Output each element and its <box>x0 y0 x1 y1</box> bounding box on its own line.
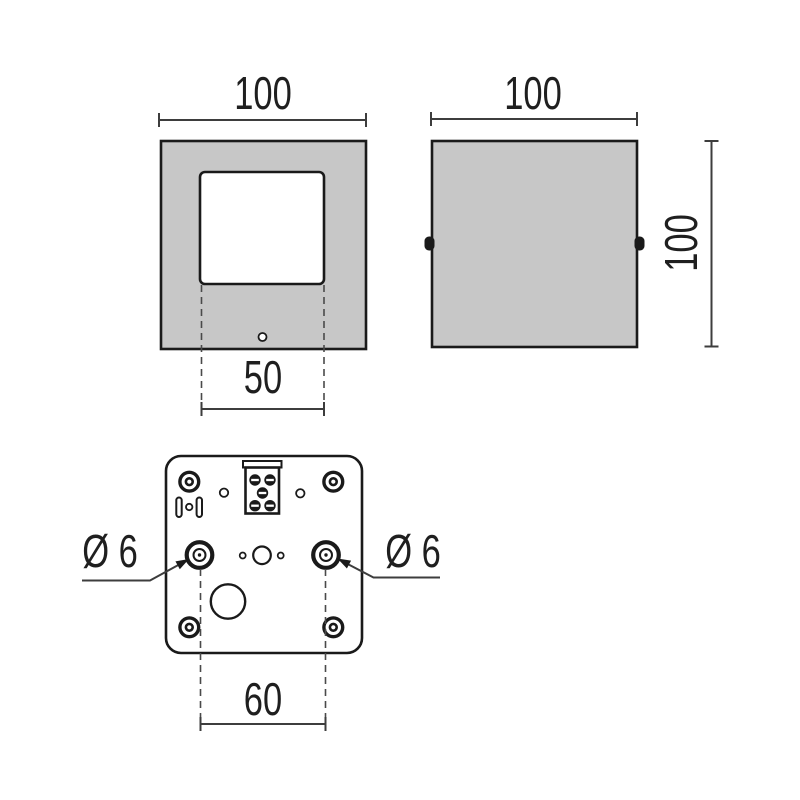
technical-drawing <box>0 0 800 800</box>
front-width-label: 100 <box>203 70 323 116</box>
front-window-dimension <box>202 402 325 416</box>
side-nub-right <box>635 237 645 251</box>
hole-left-diameter-label: Ø 6 <box>50 528 170 574</box>
side-height-label: 100 <box>658 183 704 303</box>
side-body <box>432 141 637 347</box>
side-nub-left <box>425 237 435 251</box>
drawing-canvas: 100 100 100 50 Ø 6 Ø 6 60 <box>0 0 800 800</box>
base-spacing-label: 60 <box>203 676 323 722</box>
side-width-label: 100 <box>473 70 593 116</box>
front-window <box>200 172 324 284</box>
front-small-hole <box>259 333 267 341</box>
front-window-label: 50 <box>203 354 323 400</box>
hole-right-diameter-label: Ø 6 <box>353 528 473 574</box>
